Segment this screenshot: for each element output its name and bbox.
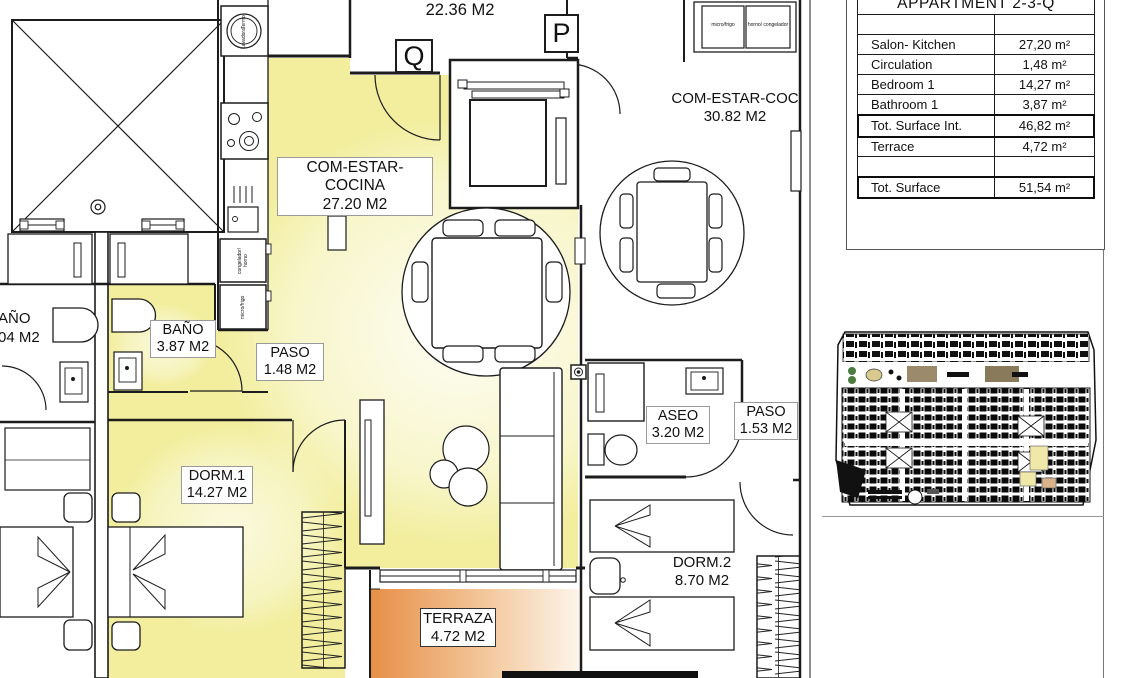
room-label-aseo: ASEO3.20 M2 [646, 406, 710, 444]
room-label-terraza: TERRAZA4.72 M2 [420, 608, 496, 647]
sofa [500, 368, 562, 570]
unit-letter-q: Q [396, 40, 432, 72]
door-stop [571, 365, 586, 379]
unit-letter-p: P [545, 15, 578, 52]
room-label-salon: COM-ESTAR-COCINA27.20 M2 [277, 157, 433, 216]
stove [221, 103, 268, 159]
room-label-dorm1: DORM.114.27 M2 [181, 466, 253, 504]
shelf [328, 216, 346, 250]
key-plan [836, 332, 1096, 505]
summary-title: APPARTMENT 2-3-Q [858, 0, 1094, 15]
room-label-paso-p: PASO1.53 M2 [734, 402, 798, 440]
party-wall-left [95, 232, 108, 678]
oven-freezer-label-p: horno/ congelador [746, 12, 790, 38]
lightwell [12, 20, 224, 232]
summary-empty-row [858, 15, 1094, 35]
key-plan-highlight [1030, 446, 1048, 470]
summary-row-total: Tot. Surface 51,54 m² [858, 177, 1094, 198]
wardrobe-dorm1 [302, 512, 345, 668]
tv-unit [360, 400, 384, 544]
summary-empty-row-2 [858, 157, 1094, 177]
apartment-summary-table: APPARTMENT 2-3-Q Salon- Kitchen 27,20 m²… [857, 0, 1095, 199]
summary-row-circulation: Circulation 1,48 m² [858, 55, 1094, 75]
toilet-tank [588, 434, 604, 465]
dining-table [432, 238, 542, 348]
summary-row-bathroom1: Bathroom 1 3,87 m² [858, 95, 1094, 115]
vent [234, 186, 252, 203]
washer-label: LavadoraTermo [228, 12, 260, 52]
summary-row-terrace: Terrace 4,72 m² [858, 137, 1094, 157]
radiator [791, 131, 801, 191]
room-label-bano-neighbor: AÑO04 M2 [0, 310, 48, 348]
room-label-salon-p: COM-ESTAR-COC30.82 M2 [670, 90, 800, 126]
dining-set-p [600, 161, 744, 305]
wardrobe-dorm2 [757, 556, 800, 678]
nightstand [590, 558, 620, 594]
room-label-paso: PASO1.48 M2 [256, 343, 324, 381]
summary-row-bedroom1: Bedroom 1 14,27 m² [858, 75, 1094, 95]
toilet-bowl [605, 435, 637, 465]
summary-row-salon-kitchen: Salon- Kitchen 27,20 m² [858, 35, 1094, 55]
freezer-oven-label: congelador/ horno [224, 242, 262, 280]
lightwell-windows [20, 219, 184, 231]
bathtub [112, 299, 156, 332]
bottom-wall [502, 671, 698, 678]
room-label-bano: BAÑO3.87 M2 [150, 320, 216, 358]
dining-set-q [402, 208, 570, 376]
terrace-window [370, 570, 576, 589]
floor-plan-page: 22.36 M2 Q P COM-ESTAR-COCINA27.20 M2 BA… [0, 0, 1130, 678]
micro-fridge-label-p: micro/frigo [702, 18, 744, 32]
elevator [450, 60, 578, 208]
micro-fridge-label: micro/frigo [224, 288, 262, 326]
upper-area-label: 22.36 M2 [418, 1, 502, 20]
room-label-dorm2: DORM.28.70 M2 [664, 554, 740, 590]
bed-neighbor [0, 493, 92, 650]
key-plan-baseline [822, 516, 1104, 517]
summary-row-total-int: Tot. Surface Int. 46,82 m² [858, 115, 1094, 137]
